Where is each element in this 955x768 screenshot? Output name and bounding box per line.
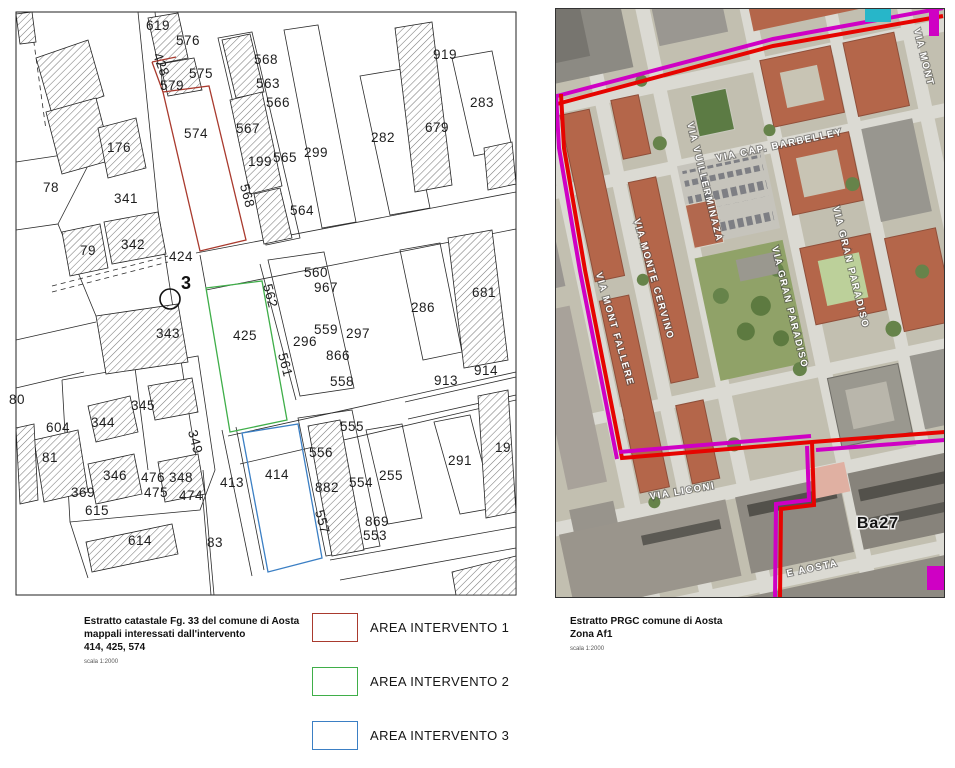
map-point-marker-label: 3 (181, 273, 191, 293)
cadastral-map: 3 61957642857557957456856356656719956529… (0, 0, 530, 600)
parcel-label: 866 (326, 348, 350, 363)
parcel-label: 255 (379, 468, 403, 483)
parcel-label: 882 (315, 480, 339, 495)
prgc-caption-line2: Zona Af1 (570, 628, 722, 641)
parcel-label: 565 (273, 150, 297, 165)
boundary-magenta-bottomright (927, 566, 945, 590)
parcel-label: 558 (330, 374, 354, 389)
boundary-cyan-segment (865, 8, 891, 22)
parcel-label: 914 (474, 363, 498, 378)
parcel-label: 574 (184, 126, 208, 141)
parcel-label: 296 (293, 334, 317, 349)
parcel-label: 579 (160, 78, 184, 93)
parcel-label: 553 (363, 528, 387, 543)
legend-row-area-2: AREA INTERVENTO 2 (312, 666, 572, 697)
cadastral-caption: Estratto catastale Fg. 33 del comune di … (84, 615, 299, 669)
parcel-label: 81 (42, 450, 58, 465)
parcel-label: 424 (169, 249, 193, 264)
legend-label-area-3: AREA INTERVENTO 3 (370, 728, 509, 743)
parcel-label: 575 (189, 66, 213, 81)
parcel-label: 78 (43, 180, 59, 195)
legend-swatch-red (312, 613, 358, 642)
parcel-label: 348 (169, 470, 193, 485)
prgc-caption-line1: Estratto PRGC comune di Aosta (570, 615, 722, 628)
parcel-label: 83 (207, 535, 223, 550)
parcel-label: 614 (128, 533, 152, 548)
parcel-label: 199 (248, 154, 272, 169)
parcel-label: 299 (304, 145, 328, 160)
parcel-label: 342 (121, 237, 145, 252)
parcel-label: 563 (256, 76, 280, 91)
aerial-map: VIA CAP. BARBELLEYVIA GRAN PARADISOVIA G… (555, 8, 945, 598)
parcel-label: 913 (434, 373, 458, 388)
parcel-label: 556 (309, 445, 333, 460)
parcel-label: 343 (156, 326, 180, 341)
parcel-label: 19 (495, 440, 511, 455)
legend-label-area-1: AREA INTERVENTO 1 (370, 620, 509, 635)
parcel-label: 564 (290, 203, 314, 218)
parcel-label: 568 (254, 52, 278, 67)
parcel-label: 425 (233, 328, 257, 343)
parcel-label: 869 (365, 514, 389, 529)
parcel-label: 474 (179, 488, 203, 503)
page: 3 61957642857557957456856356656719956529… (0, 0, 955, 768)
parcel-label: 476 (141, 470, 165, 485)
parcel-label: 80 (9, 392, 25, 407)
parcel-label: 369 (71, 485, 95, 500)
parcel-label: 559 (314, 322, 338, 337)
parcel-label: 282 (371, 130, 395, 145)
parcel-label: 615 (85, 503, 109, 518)
cadastral-caption-scale: scala 1:2000 (84, 656, 299, 669)
parcel-label: 619 (146, 18, 170, 33)
parcel-label: 679 (425, 120, 449, 135)
legend-row-area-3: AREA INTERVENTO 3 (312, 720, 572, 751)
parcel-label: 560 (304, 265, 328, 280)
legend-label-area-2: AREA INTERVENTO 2 (370, 674, 509, 689)
cadastral-caption-line3: 414, 425, 574 (84, 641, 299, 654)
parcel-label: 79 (80, 243, 96, 258)
legend-swatch-green (312, 667, 358, 696)
prgc-caption: Estratto PRGC comune di Aosta Zona Af1 s… (570, 615, 722, 656)
parcel-label: 567 (236, 121, 260, 136)
parcel-label: 967 (314, 280, 338, 295)
zone-code-label: Ba27 (857, 515, 899, 532)
parcel-label: 681 (472, 285, 496, 300)
parcel-label: 344 (91, 415, 115, 430)
parcel-label: 566 (266, 95, 290, 110)
parcel-label: 346 (103, 468, 127, 483)
prgc-caption-scale: scala 1:2000 (570, 643, 722, 656)
parcel-label: 475 (144, 485, 168, 500)
legend: AREA INTERVENTO 1 AREA INTERVENTO 2 AREA… (312, 612, 572, 768)
parcel-label: 554 (349, 475, 373, 490)
parcel-label: 919 (433, 47, 457, 62)
parcel-label: 345 (131, 398, 155, 413)
parcel-label: 413 (220, 475, 244, 490)
cadastral-caption-line1: Estratto catastale Fg. 33 del comune di … (84, 615, 299, 628)
parcel-label: 176 (107, 140, 131, 155)
parcel-label: 297 (346, 326, 370, 341)
parcel-label: 555 (340, 419, 364, 434)
boundary-magenta-topright (929, 8, 939, 36)
parcel-label: 283 (470, 95, 494, 110)
parcel-label: 341 (114, 191, 138, 206)
legend-row-area-1: AREA INTERVENTO 1 (312, 612, 572, 643)
parcel-label: 414 (265, 467, 289, 482)
parcel-label: 604 (46, 420, 70, 435)
cadastral-caption-line2: mappali interessati dall'intervento (84, 628, 299, 641)
parcel-label: 291 (448, 453, 472, 468)
parcel-label: 576 (176, 33, 200, 48)
legend-swatch-blue (312, 721, 358, 750)
parcel-label: 286 (411, 300, 435, 315)
